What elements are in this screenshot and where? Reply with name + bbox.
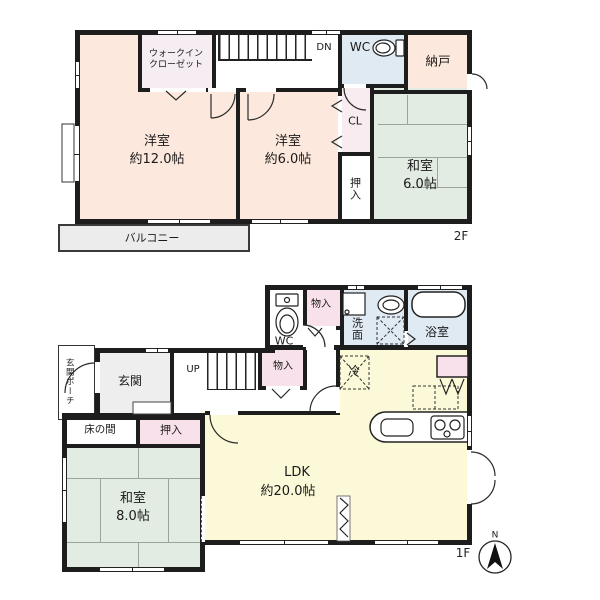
door-arc (166, 74, 487, 148)
nando-label: 納戸 (425, 54, 450, 69)
entrance-label: 玄関 (118, 374, 142, 388)
tokonoma-label: 床の間 (84, 424, 116, 437)
wc-1f-label: WC (275, 334, 294, 347)
closet-cl-label: CL (348, 114, 362, 127)
bathtub-icon (412, 292, 465, 317)
shower-cabinet-icon (343, 293, 365, 315)
bedroom6-name: 洋室 (275, 134, 301, 150)
washbasin-icon (378, 296, 404, 314)
bathroom-label: 浴室 (425, 325, 449, 339)
oshiire-2f-label: 押入 (350, 177, 361, 201)
bay-window-frame (62, 124, 74, 182)
walkin-closet-label: ウォークイン クローゼット (149, 49, 203, 71)
bedroom6-size: 約6.0帖 (265, 152, 312, 168)
pantry-cabinet (437, 356, 468, 394)
washroom-label: 洗面 (352, 317, 363, 341)
toilet-icon (276, 294, 298, 336)
ldk-name: LDK (284, 465, 310, 481)
washitsu6-name: 和室 (407, 159, 433, 175)
storage-hall-label: 物入 (273, 361, 293, 373)
dining-table-box (413, 386, 458, 409)
storage-top-label: 物入 (311, 299, 331, 311)
compass-n-label: N (492, 531, 499, 542)
bedroom12-name: 洋室 (144, 134, 170, 150)
floor2-label: 2F (454, 229, 469, 243)
floor1-label: 1F (456, 546, 471, 560)
ldk-size: 約20.0帖 (261, 484, 316, 500)
balcony-label: バルコニー (125, 231, 180, 244)
oshiire-1f-label: 押入 (160, 423, 182, 436)
wc-2f-label: WC (350, 40, 370, 54)
toilet-icon (373, 40, 404, 56)
entrance-step (133, 402, 171, 414)
fixtures-layer (0, 0, 600, 600)
folding-partition (337, 496, 350, 541)
floor-plan: ウォークイン クローゼット DN WC 納戸 洋室 約12.0帖 洋室 約6.0… (0, 0, 600, 600)
porch-label: 玄関ポーチ (65, 358, 74, 406)
bedroom12-size: 約12.0帖 (130, 152, 185, 168)
washing-machine-icon (377, 317, 404, 344)
stairs-up-label: UP (186, 364, 199, 376)
fridge-label: 冷 (348, 364, 360, 378)
washitsu8-size: 8.0帖 (116, 509, 150, 525)
compass-icon (479, 541, 511, 573)
washitsu8-name: 和室 (120, 491, 146, 507)
washitsu6-size: 6.0帖 (403, 177, 437, 193)
stairs-dn-label: DN (316, 42, 331, 54)
